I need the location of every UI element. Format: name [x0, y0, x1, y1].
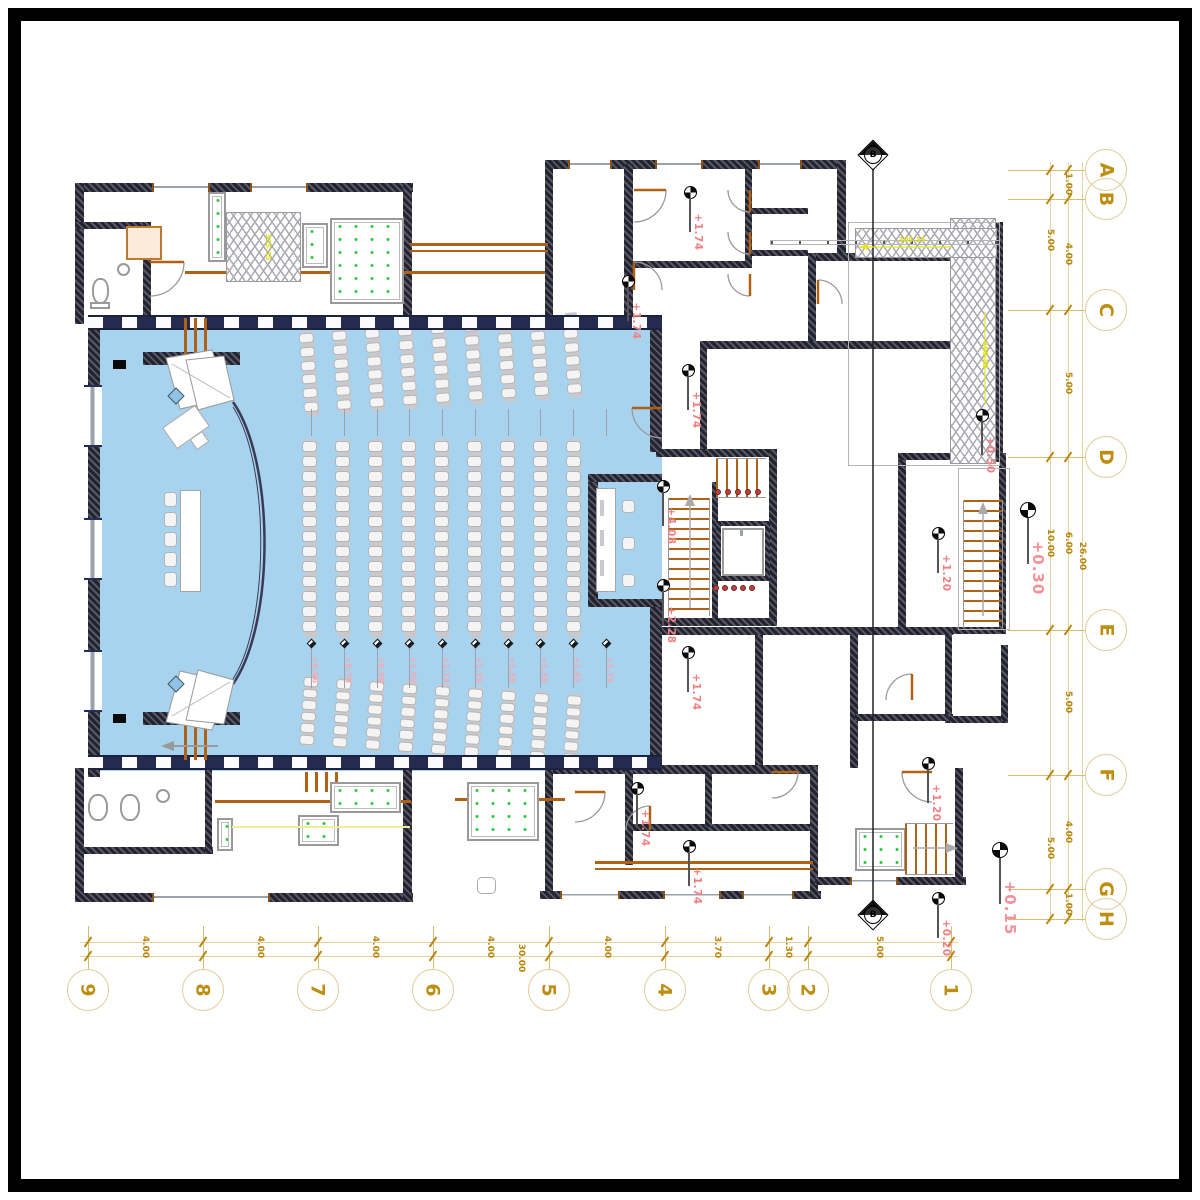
grid-bubble-label: B — [1095, 192, 1117, 206]
seat — [334, 714, 350, 725]
toilet — [88, 794, 108, 821]
seat — [435, 392, 451, 403]
seat — [365, 739, 381, 750]
window — [655, 160, 703, 169]
wall-segment — [950, 716, 1008, 723]
grid-line-col — [769, 926, 770, 970]
grid-bubble-label: 3 — [758, 983, 780, 996]
seat — [498, 346, 514, 357]
seat — [335, 591, 350, 602]
window — [850, 877, 898, 885]
elevator-door — [740, 528, 743, 536]
seat — [500, 621, 515, 632]
level-marker-stem — [937, 539, 939, 573]
seat — [434, 486, 449, 497]
seat — [302, 471, 317, 482]
baluster-dot — [722, 585, 728, 591]
seat — [566, 606, 581, 617]
dimension-text: 5.00 — [1045, 837, 1055, 859]
window — [742, 891, 794, 899]
level-text: +1.74 — [691, 867, 703, 904]
seat — [335, 456, 350, 467]
ramp-label: 105.35 — [981, 341, 989, 368]
wall-segment — [403, 768, 412, 902]
seat — [467, 531, 482, 542]
baluster-dot — [749, 585, 755, 591]
dimension-text: 6.00 — [1063, 532, 1073, 554]
seat — [566, 591, 581, 602]
seat — [530, 739, 546, 750]
wall-segment — [656, 449, 777, 457]
seat — [500, 486, 515, 497]
seat — [566, 369, 582, 380]
seat — [333, 358, 349, 369]
wall-segment — [75, 183, 84, 324]
seat — [566, 546, 581, 557]
wall-segment — [855, 714, 953, 721]
planter — [330, 782, 401, 813]
seat — [335, 546, 350, 557]
wall-segment — [716, 521, 721, 581]
seat — [301, 700, 317, 711]
level-marker-stem — [981, 421, 983, 455]
seat — [566, 516, 581, 527]
dimension-text: 4.00 — [370, 936, 380, 958]
planter — [855, 828, 906, 871]
seat — [466, 362, 482, 373]
seat — [533, 546, 548, 557]
seat — [564, 730, 580, 741]
grid-bubble-col: 2 — [787, 969, 829, 1011]
wall-segment — [945, 635, 952, 723]
shower-tray — [126, 226, 162, 260]
ramp-label: 305.35 — [898, 236, 925, 244]
level-marker-stem — [687, 376, 689, 410]
window — [152, 893, 270, 902]
seat — [566, 576, 581, 587]
seat — [566, 456, 581, 467]
level-marker-stem — [662, 492, 664, 526]
level-marker-stem — [927, 769, 929, 803]
seat — [467, 591, 482, 602]
seat — [434, 591, 449, 602]
level-text: +1.74 — [630, 302, 642, 339]
seat — [534, 693, 550, 704]
wall-segment — [748, 250, 808, 256]
level-marker-icon — [976, 409, 989, 422]
seat — [464, 734, 480, 745]
grid-bubble-row: F — [1085, 754, 1127, 796]
seat — [466, 711, 482, 722]
dimension-text: 5.00 — [1045, 229, 1055, 251]
seat — [302, 688, 318, 699]
dimension-text: 1.30 — [783, 936, 793, 958]
step-level-text: +0.78 — [344, 657, 353, 683]
grid-bubble-col: 5 — [528, 969, 570, 1011]
seat — [399, 730, 415, 741]
wall-segment — [955, 768, 963, 885]
baluster-dot — [745, 489, 751, 495]
seat — [500, 702, 516, 713]
level-text: +1.20 — [930, 784, 942, 821]
toilet-tank — [90, 302, 110, 309]
aisle-line — [344, 409, 345, 436]
desk-slot — [600, 500, 604, 516]
canopy-edge — [770, 240, 1000, 245]
wall-segment — [650, 330, 662, 452]
seat — [368, 501, 383, 512]
seat — [368, 591, 383, 602]
seat — [302, 456, 317, 467]
step-level-text: +1.62 — [573, 657, 582, 683]
seat — [434, 697, 450, 708]
seat — [402, 394, 418, 405]
grid-bubble-row: H — [1085, 898, 1127, 940]
seat — [467, 546, 482, 557]
level-marker-icon — [922, 757, 935, 770]
floor-symbol — [477, 877, 496, 894]
seat — [301, 711, 317, 722]
seat — [335, 690, 351, 701]
grid-bubble-row: E — [1085, 609, 1127, 651]
seat — [368, 531, 383, 542]
planter — [217, 818, 233, 851]
seat — [566, 501, 581, 512]
seat — [302, 621, 317, 632]
seat — [532, 716, 548, 727]
step-level-text: +1.26 — [475, 657, 484, 683]
level-text: +1.74 — [639, 809, 651, 846]
wall-segment — [588, 599, 662, 607]
seat — [335, 516, 350, 527]
grid-bubble-label: 7 — [307, 983, 329, 996]
aisle-line — [573, 409, 574, 436]
seat — [335, 606, 350, 617]
seat — [500, 516, 515, 527]
window — [568, 160, 612, 169]
seat — [335, 561, 350, 572]
seat — [467, 441, 482, 452]
seat — [368, 576, 383, 587]
level-marker-icon — [992, 842, 1008, 858]
seat — [565, 718, 581, 729]
wall-segment — [769, 449, 777, 625]
level-marker-icon — [682, 646, 695, 659]
seat — [566, 707, 582, 718]
seat — [434, 471, 449, 482]
seat — [434, 456, 449, 467]
seat — [467, 501, 482, 512]
step-level-text: +1.50 — [540, 657, 549, 683]
seat — [530, 330, 546, 341]
wall-segment — [545, 160, 553, 324]
section-marker-bubble: B — [864, 146, 882, 164]
elevator-cab — [722, 528, 764, 576]
seat — [434, 621, 449, 632]
level-marker-stem — [662, 591, 664, 625]
wall-segment — [660, 627, 953, 635]
column — [113, 360, 126, 369]
seat — [334, 702, 350, 713]
seat — [499, 360, 515, 371]
wall-segment — [898, 453, 906, 633]
booth-chair — [622, 574, 635, 587]
seat — [399, 353, 415, 364]
seat — [468, 688, 484, 699]
seat — [367, 369, 383, 380]
wall-segment — [403, 183, 412, 324]
wall-segment — [75, 768, 84, 902]
seat — [401, 546, 416, 557]
seat — [533, 561, 548, 572]
seat — [467, 606, 482, 617]
level-text: +2.28 — [665, 606, 677, 643]
seat — [497, 737, 513, 748]
table-chair — [164, 512, 177, 527]
wall-segment — [650, 604, 662, 765]
level-marker-icon — [631, 782, 644, 795]
seat — [401, 381, 417, 392]
seat — [335, 385, 351, 396]
ramp-label: 305.35 — [264, 233, 272, 260]
seat — [500, 456, 515, 467]
seat — [434, 516, 449, 527]
timber-frame — [595, 861, 813, 864]
timber-frame — [184, 318, 187, 354]
wall-segment — [748, 208, 808, 214]
seat — [401, 471, 416, 482]
column — [113, 714, 126, 723]
level-marker-icon — [622, 275, 635, 288]
seat — [566, 621, 581, 632]
seat — [533, 371, 549, 382]
seat — [366, 727, 382, 738]
auditorium-rear-wall — [88, 755, 662, 770]
table-chair — [164, 532, 177, 547]
seat — [533, 704, 549, 715]
step-level-text: +1.14 — [442, 657, 451, 683]
seat — [566, 486, 581, 497]
seat — [299, 333, 315, 344]
seat — [434, 576, 449, 587]
level-marker-icon — [932, 892, 945, 905]
level-marker-icon — [932, 527, 945, 540]
seat — [302, 501, 317, 512]
aisle-line — [540, 409, 541, 436]
dimension-text: 3.70 — [712, 936, 722, 958]
wall-segment — [75, 183, 413, 192]
level-marker-icon — [657, 579, 670, 592]
baluster-dot — [731, 585, 737, 591]
seat — [367, 704, 383, 715]
step-level-text: +1.74 — [606, 657, 615, 683]
section-marker-bubble: B — [864, 906, 882, 924]
grid-bubble-col: 9 — [67, 969, 109, 1011]
grid-bubble-row: C — [1085, 289, 1127, 331]
seat — [433, 365, 449, 376]
seat — [533, 441, 548, 452]
stair-flight — [905, 823, 953, 875]
seat — [302, 441, 317, 452]
level-marker-stem — [636, 794, 638, 828]
level-marker-icon — [657, 480, 670, 493]
sink — [156, 789, 170, 803]
seat — [533, 591, 548, 602]
seat — [500, 471, 515, 482]
seat — [299, 346, 315, 357]
level-text: +1.20 — [940, 554, 952, 591]
planter — [330, 218, 404, 304]
seat — [434, 561, 449, 572]
grid-line-col — [549, 926, 550, 970]
seat — [498, 725, 514, 736]
seat — [401, 456, 416, 467]
seat — [401, 591, 416, 602]
seat — [534, 385, 550, 396]
seat — [500, 374, 516, 385]
grid-line-col — [433, 926, 434, 970]
seat — [500, 561, 515, 572]
seat — [500, 501, 515, 512]
seat — [434, 606, 449, 617]
seat — [467, 576, 482, 587]
level-text: +1.74 — [692, 213, 704, 250]
seat — [565, 355, 581, 366]
wall-segment — [808, 253, 816, 349]
canopy-outline — [848, 222, 1000, 466]
seat — [335, 501, 350, 512]
grid-line-col — [808, 926, 809, 970]
seat — [302, 561, 317, 572]
window — [84, 650, 102, 712]
wall-segment — [716, 576, 770, 581]
grid-bubble-label: E — [1095, 624, 1117, 637]
seat — [335, 441, 350, 452]
aisle-line — [606, 409, 607, 436]
seat — [333, 725, 349, 736]
grid-bubble-label: 1 — [940, 983, 962, 996]
level-marker-stem — [688, 852, 690, 886]
grid-line-col — [88, 926, 89, 970]
seat — [566, 471, 581, 482]
seat — [531, 727, 547, 738]
planter — [208, 192, 226, 262]
booth-chair — [622, 537, 635, 550]
aisle-line — [475, 409, 476, 436]
seat — [302, 388, 318, 399]
grid-bubble-label: 4 — [654, 983, 676, 996]
seat — [432, 351, 448, 362]
seat — [299, 734, 315, 745]
planter — [467, 782, 539, 841]
level-marker-stem — [627, 287, 629, 321]
wall-segment — [143, 352, 240, 365]
seat — [533, 621, 548, 632]
seat — [366, 716, 382, 727]
baluster-dot — [735, 489, 741, 495]
seat — [533, 531, 548, 542]
seat — [497, 333, 513, 344]
seat — [467, 700, 483, 711]
timber-frame — [194, 318, 197, 354]
grid-bubble-label: A — [1095, 163, 1117, 178]
seat — [432, 721, 448, 732]
level-marker-stem — [937, 904, 939, 938]
seat — [332, 737, 348, 748]
seating-bank-main — [300, 438, 605, 640]
grid-bubble-label: D — [1095, 449, 1117, 465]
level-marker-icon — [684, 186, 697, 199]
seat — [533, 471, 548, 482]
seat — [500, 531, 515, 542]
grid-line-col — [203, 926, 204, 970]
wall-segment — [545, 768, 553, 899]
desk-slot — [600, 560, 604, 576]
seat — [369, 397, 385, 408]
seat — [500, 546, 515, 557]
window — [84, 385, 102, 447]
level-text: +1.74 — [690, 673, 702, 710]
dimension-text: 5.00 — [1063, 372, 1073, 394]
seat — [500, 591, 515, 602]
window — [758, 160, 802, 169]
seat — [566, 441, 581, 452]
seat — [401, 561, 416, 572]
seat — [465, 723, 481, 734]
grid-line-col — [665, 926, 666, 970]
seat — [335, 621, 350, 632]
grid-bubble-col: 4 — [644, 969, 686, 1011]
window — [560, 891, 620, 899]
seat — [401, 516, 416, 527]
seat — [302, 606, 317, 617]
dimension-text: 4.00 — [485, 936, 495, 958]
window — [250, 183, 308, 192]
level-text: +1.74 — [690, 391, 702, 428]
baluster-dot — [725, 489, 731, 495]
wall-segment — [755, 635, 763, 768]
seat — [335, 471, 350, 482]
seat — [368, 471, 383, 482]
baluster-dot — [755, 489, 761, 495]
wall-segment — [705, 772, 712, 827]
level-text: +0.20 — [940, 919, 952, 956]
wall-segment — [716, 521, 770, 526]
seat — [434, 546, 449, 557]
table-chair — [164, 552, 177, 567]
level-marker-icon — [683, 840, 696, 853]
seat — [401, 531, 416, 542]
seat — [400, 707, 416, 718]
seat — [302, 531, 317, 542]
step-level-text: +0.66 — [311, 657, 320, 683]
seat — [302, 486, 317, 497]
grid-bubble-col: 1 — [930, 969, 972, 1011]
seat — [533, 576, 548, 587]
seat — [401, 576, 416, 587]
seat — [467, 471, 482, 482]
dimension-text: 4.00 — [255, 936, 265, 958]
seat — [433, 709, 449, 720]
timber-frame — [204, 724, 207, 760]
grid-bubble-label: H — [1095, 911, 1117, 927]
seat — [567, 383, 583, 394]
seat — [368, 546, 383, 557]
seat — [500, 441, 515, 452]
grid-line-col — [318, 926, 319, 970]
window — [84, 518, 102, 580]
level-marker-stem — [689, 198, 691, 232]
